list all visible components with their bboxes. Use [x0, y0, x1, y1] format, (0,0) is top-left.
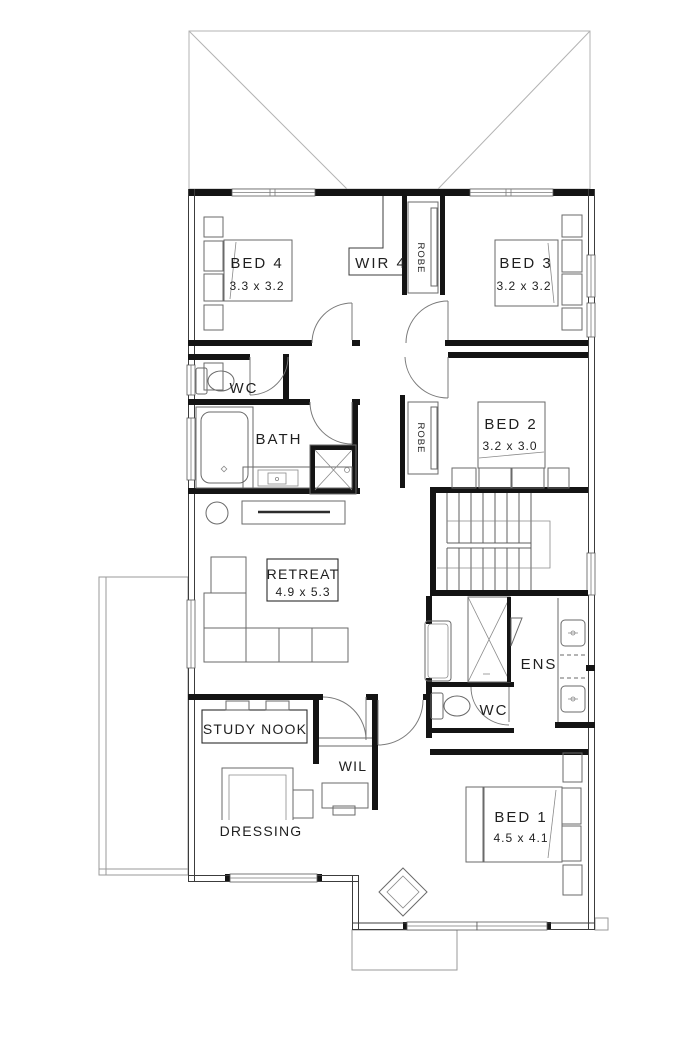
floorplan-drawing: BED 4 3.3 x 3.2 WIR 4 ROBE BED 3 3.2 x 3…	[0, 0, 700, 1045]
bed2-door	[405, 357, 448, 398]
wil-door	[323, 697, 366, 740]
bath-label: BATH	[256, 431, 303, 448]
wc-ens-label: WC	[480, 702, 509, 719]
study-nook-label: STUDY NOOK	[203, 721, 307, 737]
dressing-furniture	[222, 768, 368, 820]
robe-bed3-label: ROBE	[415, 243, 426, 274]
wall-left	[189, 189, 195, 882]
retreat-label: RETREAT	[267, 566, 340, 582]
bed3-furniture	[495, 215, 582, 330]
bed4-furniture	[204, 217, 292, 390]
bed1-label: BED 1	[494, 809, 547, 826]
bed2-dims: 3.2 x 3.0	[482, 439, 537, 453]
bed3-label: BED 3	[499, 255, 552, 272]
lower-roof-left	[99, 577, 188, 875]
ens-furniture	[425, 597, 595, 722]
window-top-right	[470, 189, 553, 196]
bed4-door	[312, 303, 352, 343]
bed4-label: BED 4	[230, 255, 283, 272]
robe-bed2-label: ROBE	[415, 423, 426, 454]
bed4-dims: 3.3 x 3.2	[229, 279, 284, 293]
window-top-left	[232, 189, 315, 196]
bath-door	[310, 402, 352, 444]
bed1-hall-door	[378, 700, 423, 745]
wc-upper-label: WC	[230, 380, 259, 397]
bed1-furniture	[379, 753, 582, 916]
floorplan-canvas: BED 4 3.3 x 3.2 WIR 4 ROBE BED 3 3.2 x 3…	[0, 0, 700, 1045]
ens-label: ENS	[521, 656, 558, 673]
wir4-label: WIR 4	[355, 255, 407, 272]
bed3-door	[406, 301, 448, 343]
roof-outline	[189, 31, 590, 189]
bath-furniture	[196, 407, 356, 494]
stairs	[437, 493, 550, 590]
dressing-label: DRESSING	[220, 823, 303, 839]
bed1-dims: 4.5 x 4.1	[493, 831, 548, 845]
wil-shelving	[319, 738, 372, 746]
wc-ens-toilet	[431, 693, 470, 719]
bed2-label: BED 2	[484, 416, 537, 433]
wc-upper-toilet	[196, 368, 234, 394]
wil-label: WIL	[339, 758, 368, 774]
retreat-dims: 4.9 x 5.3	[275, 585, 330, 599]
bed3-dims: 3.2 x 3.2	[496, 279, 551, 293]
